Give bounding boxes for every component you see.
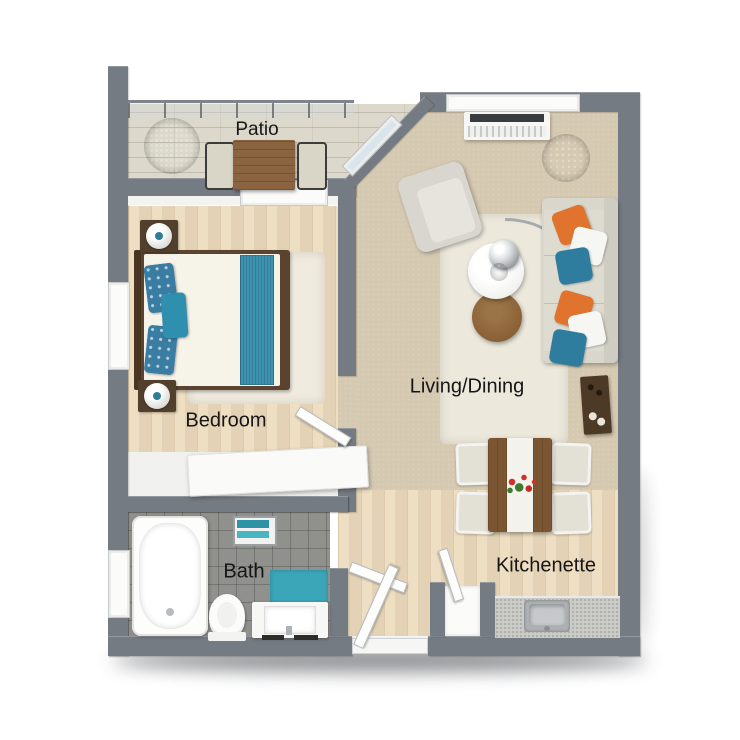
tub-faucet <box>166 608 174 616</box>
bed <box>134 250 290 390</box>
bath-top-wall <box>128 496 348 512</box>
sink-basin <box>529 604 565 625</box>
bedroom-window <box>108 282 130 370</box>
bedroom-doorway-floor <box>338 376 356 428</box>
console-decor-dark <box>588 384 594 390</box>
throw-pillow-teal <box>554 246 593 285</box>
living-window <box>446 94 580 112</box>
bedroom-living-wall <box>338 178 356 376</box>
console-table <box>580 375 612 435</box>
vent-grille <box>468 126 546 137</box>
bottom-outer-wall-right <box>428 636 640 656</box>
teal-towel <box>237 520 269 528</box>
toilet-lid <box>217 602 237 628</box>
dining-chair <box>550 442 591 485</box>
toilet-tank <box>208 632 246 641</box>
armchair-cushion <box>416 176 477 243</box>
table-plant <box>490 263 508 281</box>
right-outer-wall <box>618 92 640 656</box>
sink-faucet <box>544 626 550 631</box>
bath-right-wall-bottom <box>330 568 348 636</box>
bathtub <box>132 516 208 636</box>
bed-runner <box>240 255 274 385</box>
closet-wall-left <box>430 582 445 636</box>
bath-right-wall-top <box>330 496 348 512</box>
console-decor-bowl <box>589 412 598 421</box>
dining-table <box>488 438 552 532</box>
throw-pillow-teal <box>548 328 587 367</box>
bathroom-vanity <box>252 602 328 638</box>
towel-rack <box>233 516 277 546</box>
bath-mat <box>270 570 328 604</box>
room-label-living-dining: Living/Dining <box>410 376 525 399</box>
dining-chair <box>550 491 591 534</box>
patio-glass-railing <box>128 100 354 118</box>
vanity-drawer <box>294 635 318 640</box>
headboard <box>134 250 141 390</box>
room-label-bath: Bath <box>223 561 264 584</box>
accent-pillow <box>160 292 188 339</box>
bath-window <box>108 550 130 618</box>
patio-chair-left <box>205 142 235 190</box>
lamp-finial <box>155 232 163 240</box>
console-decor-bowl <box>597 417 606 426</box>
room-label-patio: Patio <box>235 119 278 141</box>
room-label-bedroom: Bedroom <box>185 410 266 433</box>
closet-wall-right <box>480 582 495 636</box>
room-label-kitchenette: Kitchenette <box>496 555 596 578</box>
side-table-wood <box>472 292 522 342</box>
teal-towel <box>237 531 269 538</box>
kitchen-sink <box>524 600 570 632</box>
console-decor-dark <box>596 390 602 396</box>
living-corner-plant <box>542 134 590 182</box>
patio-plant <box>144 118 200 174</box>
vanity-drawer <box>262 635 284 640</box>
sink-faucet <box>286 626 292 635</box>
patio-table <box>233 140 295 190</box>
floor-plan-stage: Patio Bedroom Living/Dining Bath Kitchen… <box>0 0 740 740</box>
lamp-finial <box>153 392 161 400</box>
sofa <box>542 198 618 363</box>
patio-chair-right <box>297 142 327 190</box>
tv-screen <box>470 114 544 122</box>
flower-centerpiece <box>500 470 540 500</box>
